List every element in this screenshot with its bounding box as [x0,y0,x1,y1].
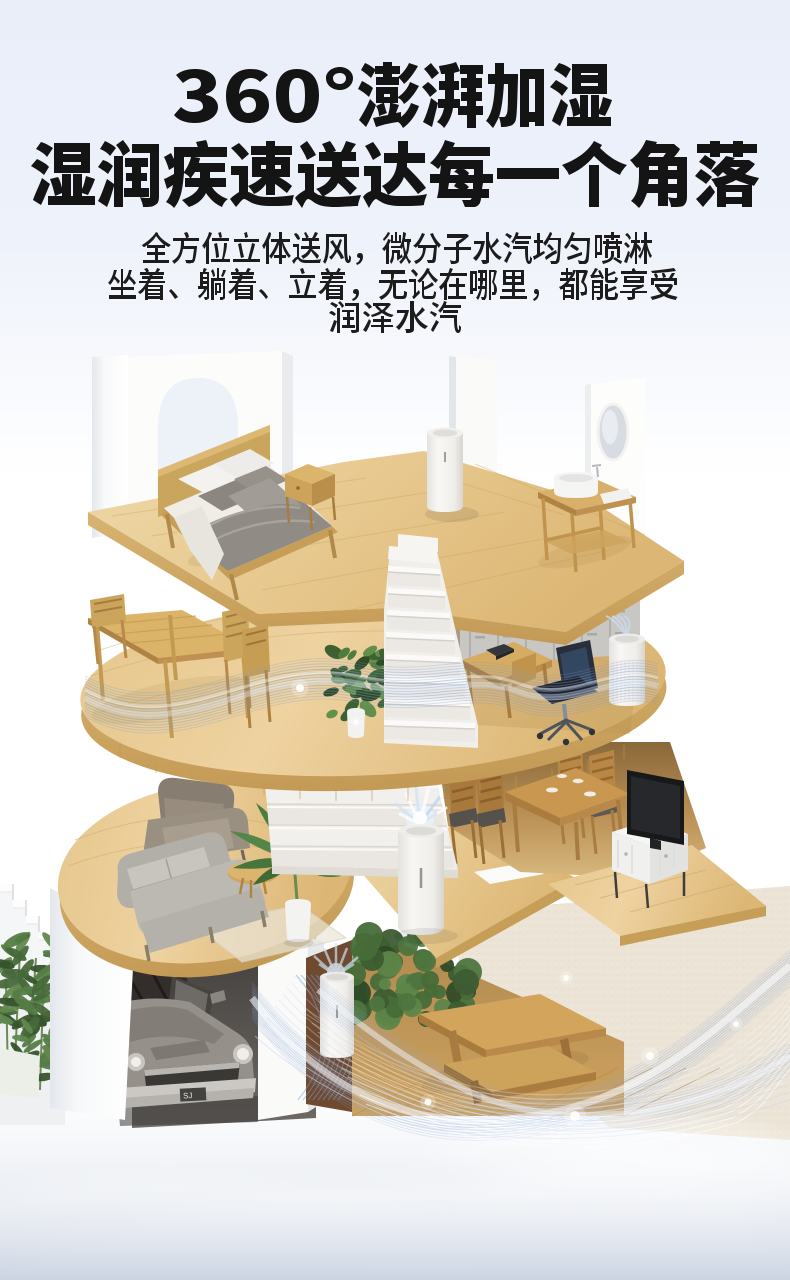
svg-text:SJ: SJ [183,1091,193,1100]
